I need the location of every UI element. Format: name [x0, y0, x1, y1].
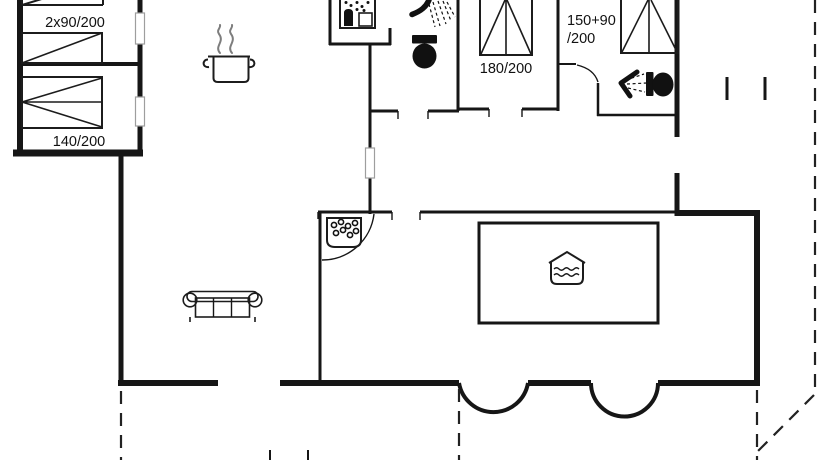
- bed-label-2x90: 2x90/200: [45, 15, 105, 31]
- door-frame-ticks: [318, 109, 522, 220]
- corner-whirlpool-icon: [322, 214, 374, 260]
- pot-handle-left: [204, 60, 209, 68]
- washer-drum: [359, 13, 372, 26]
- pot-body: [214, 57, 249, 82]
- bed-label-150-90-line2: /200: [567, 31, 595, 47]
- bed-double-180: [480, 0, 532, 55]
- swimming-pool: [479, 223, 658, 323]
- shower-icon: [412, 0, 455, 27]
- shower-spray: [429, 1, 455, 27]
- whirlpool-bubbles: [331, 219, 358, 237]
- toilet-bowl: [413, 44, 437, 69]
- floor-plan-canvas: 2x90/200 140/200 180/200 150+90 /200: [0, 0, 834, 460]
- bed-double-140: [22, 77, 102, 128]
- toilet-tank: [412, 35, 437, 44]
- window: [136, 13, 145, 44]
- interior-walls: [318, 0, 677, 383]
- cooking-pot-icon: [204, 25, 255, 82]
- bed-diagonals: [481, 0, 531, 55]
- window: [136, 97, 145, 126]
- sofa-back: [187, 292, 258, 302]
- steam: [230, 25, 233, 53]
- exterior-walls: [13, 0, 760, 417]
- swimming-pool-icon: [549, 252, 585, 284]
- shower-icon-2: [621, 72, 647, 96]
- pot-handle-right: [249, 60, 254, 68]
- washing-machine-icon: [340, 0, 375, 28]
- pool-cover: [549, 252, 585, 263]
- bed-two-singles: [22, 0, 103, 63]
- pool-box: [551, 262, 583, 284]
- sofa-icon: [183, 292, 262, 323]
- bed-diagonals: [22, 78, 102, 127]
- toilet-tank: [646, 72, 654, 96]
- pool-wave: [554, 268, 579, 271]
- steam: [218, 25, 221, 53]
- bay-window-arc: [591, 383, 658, 417]
- bed-label-150-90-line1: 150+90: [567, 13, 616, 29]
- bed-label-180: 180/200: [480, 61, 532, 77]
- bed-label-140: 140/200: [53, 134, 105, 150]
- shower-arm: [412, 0, 429, 15]
- boundary-dash-marks: [270, 450, 308, 460]
- boundary-dashed-diagonal: [755, 395, 814, 454]
- bed-family-150-90: [621, 0, 678, 53]
- detergent-jug: [344, 9, 353, 26]
- terrace-post-marks: [727, 77, 765, 100]
- door-swing: [577, 65, 598, 82]
- windows: [136, 13, 375, 178]
- single-bed-icon: [22, 0, 103, 5]
- bed-diagonals: [622, 0, 677, 53]
- toilet-icon: [412, 35, 437, 69]
- bay-window-arc: [459, 383, 528, 412]
- bed-diagonal: [22, 33, 102, 63]
- toilet-bowl: [653, 73, 674, 97]
- toilet-icon-2: [646, 72, 674, 97]
- floor-plan-page: 2x90/200 140/200 180/200 150+90 /200: [0, 0, 834, 460]
- pool-wave: [554, 274, 579, 277]
- pool-basin-outline: [479, 223, 658, 323]
- terrace-boundary: [121, 0, 815, 460]
- door-opening: [366, 148, 375, 178]
